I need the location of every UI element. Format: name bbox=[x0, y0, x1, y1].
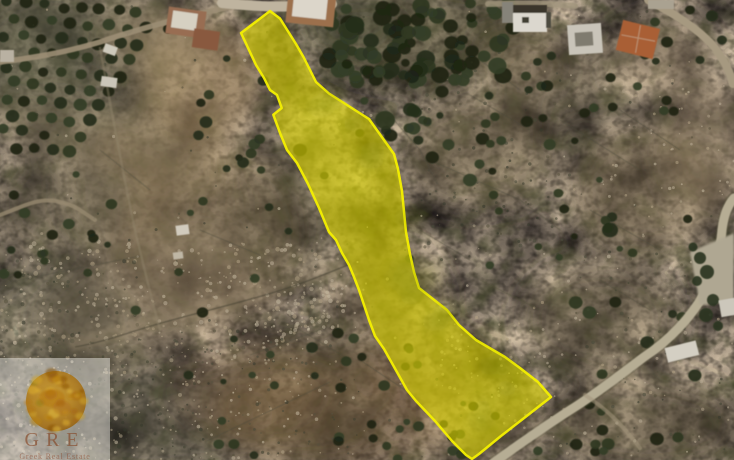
svg-text:Greek Real Estate: Greek Real Estate bbox=[19, 452, 90, 460]
svg-text:GRE: GRE bbox=[25, 429, 86, 451]
